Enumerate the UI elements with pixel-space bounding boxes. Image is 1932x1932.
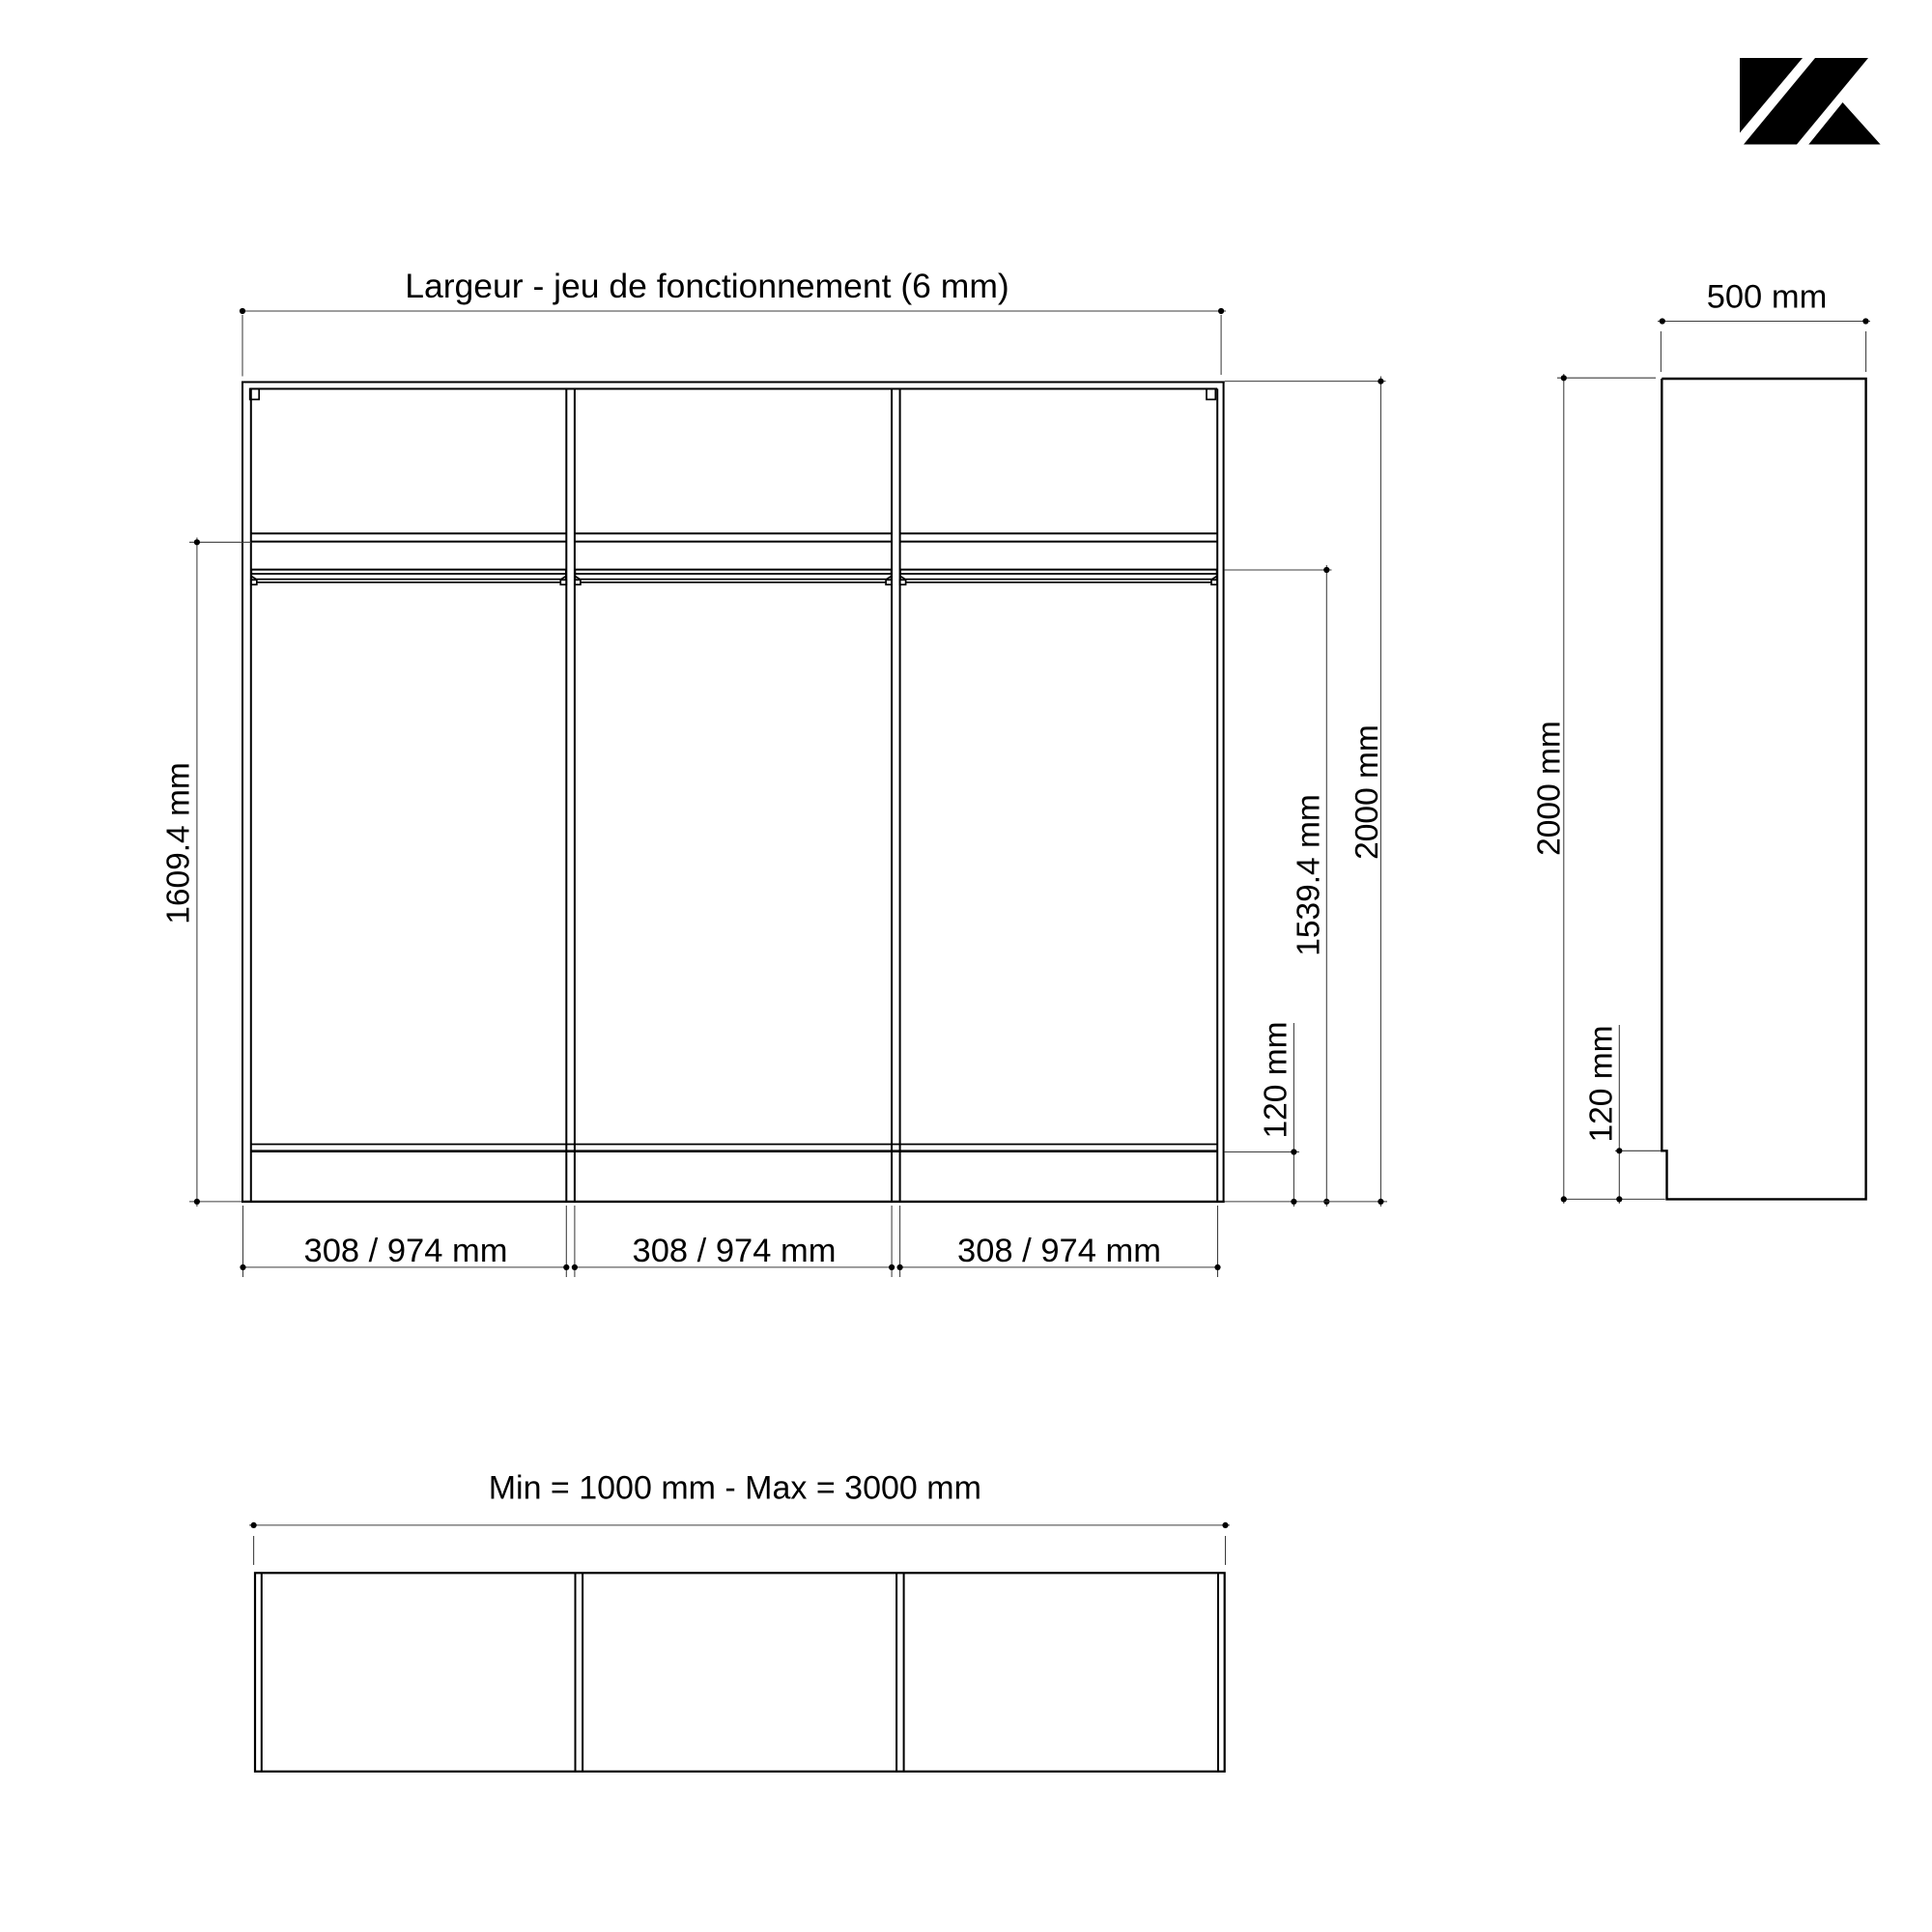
svg-text:1609.4 mm: 1609.4 mm [161, 762, 197, 924]
svg-text:120 mm: 120 mm [1583, 1025, 1619, 1142]
svg-text:308 / 974 mm: 308 / 974 mm [633, 1233, 837, 1269]
svg-text:2000 mm: 2000 mm [1532, 721, 1568, 856]
svg-text:500 mm: 500 mm [1707, 279, 1828, 316]
svg-text:2000 mm: 2000 mm [1350, 724, 1385, 860]
svg-text:Min = 1000 mm - Max = 3000 mm: Min = 1000 mm - Max = 3000 mm [489, 1470, 981, 1507]
svg-text:308 / 974 mm: 308 / 974 mm [304, 1233, 508, 1269]
svg-text:Largeur - jeu de fonctionnemen: Largeur - jeu de fonctionnement (6 mm) [405, 267, 1009, 305]
svg-text:1539.4 mm: 1539.4 mm [1291, 794, 1326, 956]
svg-text:120 mm: 120 mm [1258, 1021, 1293, 1138]
svg-text:308 / 974 mm: 308 / 974 mm [957, 1233, 1161, 1269]
